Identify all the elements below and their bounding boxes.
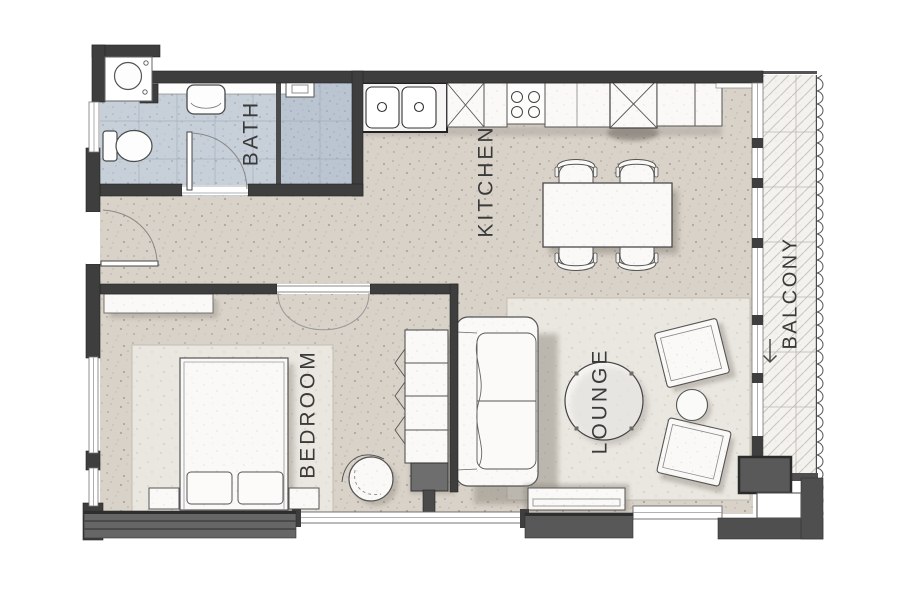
- wall-bath-bottom-right: [248, 184, 363, 196]
- wall-closet-left: [92, 45, 105, 102]
- wall-left-lower: [86, 451, 100, 470]
- table-leg-icon: [630, 427, 634, 431]
- kitchen-counter: [362, 80, 757, 141]
- wall-left-upper: [86, 148, 100, 212]
- table-leg-icon: [575, 372, 579, 376]
- nightstand-right: [289, 488, 319, 509]
- builtin-shelf: [104, 294, 213, 313]
- counter-section: [657, 83, 695, 126]
- corner-niche: [757, 493, 801, 518]
- window-bedroom-left-2: [89, 468, 98, 506]
- wall-bath-bottom-left: [100, 184, 182, 196]
- counter-section: [545, 83, 610, 127]
- washbasin: [187, 85, 225, 114]
- wall-bath-right: [352, 71, 363, 196]
- side-table: [677, 390, 708, 421]
- laundry-closet: [105, 57, 152, 101]
- structural-column: [739, 457, 791, 493]
- window-bottom-bedroom: [292, 509, 529, 528]
- wardrobe: [405, 330, 448, 463]
- window-bottom-lounge: [633, 506, 722, 519]
- sink-basin-right: [402, 87, 436, 128]
- wall-bedroom-top-right: [370, 284, 458, 294]
- wardrobe-cabinet: [411, 463, 448, 491]
- entry-door-leaf: [101, 261, 158, 266]
- wall-bedroom-bottom: [84, 511, 296, 538]
- cooktop: [507, 83, 545, 124]
- window-bedroom-left-1: [89, 357, 98, 453]
- floor-plan-drawing: BATH KITCHEN BEDROOM LOUNGE BALCONY: [0, 0, 900, 602]
- sink-basin-left: [366, 87, 399, 128]
- counter-section: [695, 83, 722, 126]
- pillow: [187, 472, 232, 504]
- wall-top: [152, 71, 763, 83]
- counter-section: [484, 83, 507, 127]
- dining-table: [543, 183, 672, 247]
- label-balcony: BALCONY: [779, 236, 801, 349]
- balustrade-scallop-edge: [817, 75, 829, 524]
- shower-partition: [276, 80, 281, 193]
- toilet-cistern: [103, 131, 117, 161]
- table-leg-icon: [630, 372, 634, 376]
- table-leg-icon: [575, 427, 579, 431]
- window-left-upper: [89, 102, 99, 152]
- floor-plan-canvas: BATH KITCHEN BEDROOM LOUNGE BALCONY: [0, 0, 900, 602]
- balcony-top-edge: [763, 71, 817, 74]
- window-wall-balcony: [752, 83, 763, 478]
- wall-left-mid: [86, 264, 100, 358]
- label-bedroom: BEDROOM: [297, 349, 320, 479]
- toilet-bowl: [116, 131, 152, 162]
- label-bath: BATH: [240, 100, 263, 166]
- label-kitchen: KITCHEN: [475, 124, 498, 237]
- wall-lounge-bottom: [525, 513, 633, 538]
- label-lounge: LOUNGE: [589, 348, 612, 455]
- wall-bedroom-top-left: [100, 284, 277, 294]
- bath-door-leaf: [187, 132, 192, 190]
- nightstand-left: [149, 488, 179, 509]
- wall-bedroom-lounge-divider: [450, 284, 458, 492]
- shower-fixture: [286, 82, 314, 97]
- washing-machine-icon: [115, 63, 142, 90]
- pillow: [238, 472, 283, 504]
